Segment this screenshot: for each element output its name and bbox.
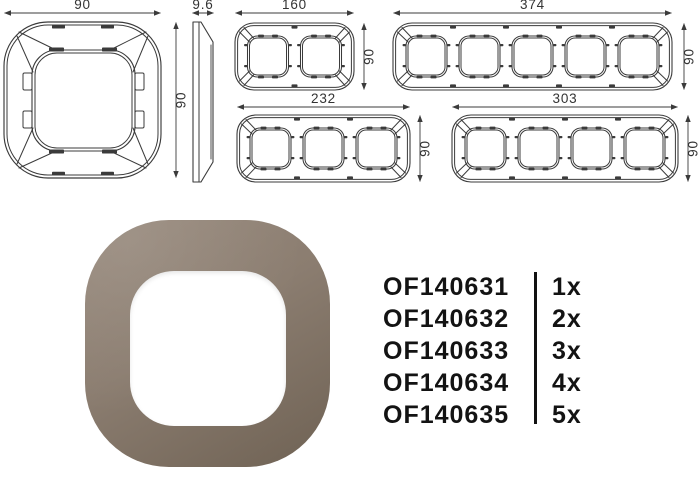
dimension-label: 160 [282,0,307,12]
parts-divider-line [534,272,537,424]
part-reference: OF140634 [383,369,535,398]
drawing-1gang-front: 9090 [2,0,194,200]
drawing-side-profile: 9.6 [186,0,230,200]
dimension-label: 232 [311,91,336,106]
part-quantity: 4x [552,369,582,398]
dimension-label: 90 [682,48,697,65]
part-reference: OF140635 [383,401,535,430]
part-quantity: 1x [552,273,582,302]
part-reference: OF140632 [383,305,535,334]
part-row: OF140632 2x [383,303,582,335]
product-sheet: 9090 9.6 16090 37490 23290 30390 OF14063… [0,0,700,481]
dimension-label: 90 [686,140,700,157]
dimension-label: 90 [418,140,433,157]
product-photo-opening [130,271,286,426]
parts-list: OF140631 1x OF140632 2x OF140633 3x OF14… [383,271,582,431]
drawing-5gang-front: 37490 [388,0,700,110]
part-quantity: 2x [552,305,582,334]
dimension-label: 90 [74,0,91,12]
dimension-label: 374 [520,0,545,12]
drawing-2gang-front: 16090 [230,0,380,110]
dimension-label: 303 [553,91,578,106]
part-row: OF140631 1x [383,271,582,303]
dimension-label: 9.6 [192,0,213,12]
dimension-label: 90 [362,48,377,65]
drawing-4gang-front: 30390 [447,95,700,200]
part-reference: OF140631 [383,273,535,302]
part-quantity: 3x [552,337,582,366]
part-reference: OF140633 [383,337,535,366]
product-photo-frame [85,220,330,467]
part-quantity: 5x [552,401,582,430]
part-row: OF140633 3x [383,335,582,367]
drawing-3gang-front: 23290 [232,95,442,200]
part-row: OF140634 4x [383,367,582,399]
part-row: OF140635 5x [383,399,582,431]
